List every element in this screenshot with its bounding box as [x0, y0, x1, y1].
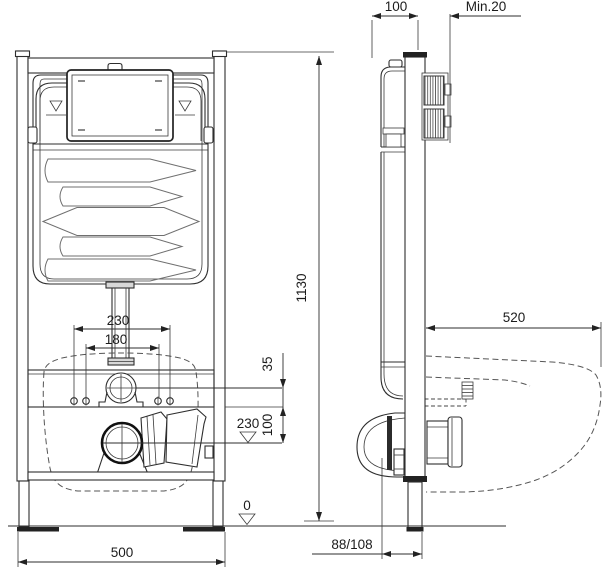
dim-bowl-depth-520: 520: [426, 310, 601, 367]
dim-label-min20: Min.20: [466, 0, 507, 14]
cistern-side-profile: [381, 60, 405, 399]
drain-elbow-side: [357, 413, 405, 477]
wc-frame-drawing: 230 180 35 100 230 0 500: [0, 0, 608, 583]
dim-label-35: 35: [260, 356, 275, 371]
technical-drawing-canvas: 230 180 35 100 230 0 500: [0, 0, 608, 583]
right-post-cap: [213, 51, 227, 57]
level-marker-icon: [240, 432, 256, 443]
dim-label-180: 180: [105, 332, 128, 347]
right-clip: [204, 127, 213, 143]
outlet-socket: [427, 417, 462, 467]
dim-min-wall-20: Min.20: [450, 0, 521, 19]
dim-label-depth-100: 100: [385, 0, 408, 14]
level-marker-230: 230: [237, 416, 260, 443]
left-post-cap: [16, 51, 30, 57]
window-top-tab: [108, 64, 122, 71]
level-marker-0: 0: [239, 498, 255, 525]
dim-frame-width-500: 500: [18, 532, 225, 567]
dim-label-520: 520: [503, 310, 526, 325]
level-label-230: 230: [237, 416, 260, 431]
drain-outlet: [97, 409, 213, 474]
level-label-0: 0: [243, 498, 251, 513]
level-marker-icon: [239, 514, 255, 525]
side-view: [357, 14, 601, 532]
dim-label-230: 230: [107, 313, 130, 328]
dim-frame-depth-100: 100: [372, 0, 418, 58]
dim-label-100: 100: [260, 414, 275, 437]
right-foot: [183, 481, 225, 532]
dim-label-88-108: 88/108: [331, 537, 372, 552]
access-window: [67, 64, 173, 142]
left-foot: [17, 481, 59, 532]
dim-label-500: 500: [111, 545, 134, 560]
left-clip: [28, 127, 37, 143]
bottom-crossbar: [28, 472, 214, 480]
dim-frame-height-1130: 1130: [226, 52, 334, 521]
dim-label-1130: 1130: [294, 273, 309, 302]
frame-left-post: [17, 51, 28, 481]
drain-pipe-down: [408, 482, 422, 528]
frame-right-post: [214, 51, 225, 481]
flush-plate: [422, 73, 451, 140]
front-view: [16, 51, 283, 532]
